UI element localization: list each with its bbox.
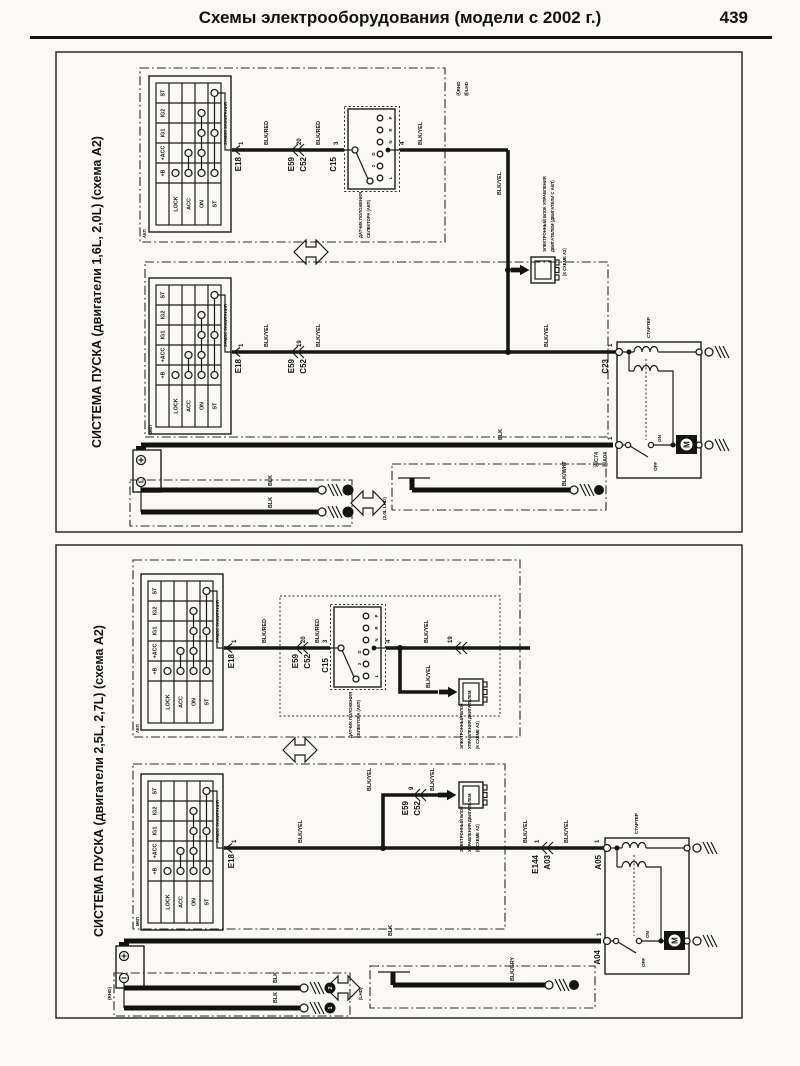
variant-tag-akp: АКП — [142, 229, 147, 238]
variant-tag-mkp: МКП — [135, 917, 140, 926]
ignition-switch — [149, 278, 232, 434]
wire-label-blkyel: BLK/YEL — [298, 819, 304, 843]
variant-swap-arrow — [351, 491, 385, 515]
wire-label-blkred: BLK/RED — [315, 619, 321, 643]
panel2-title: СИСТЕМА ПУСКА (двигатели 2,5L, 2,7L) (сх… — [92, 625, 106, 937]
selector-position-sensor — [330, 605, 386, 690]
ground-mark-1: 1 — [328, 1006, 334, 1009]
wire-label-blkyel: BLK/YEL — [424, 619, 430, 643]
connector-e59: E59 — [287, 156, 296, 171]
pin-20: 20 — [297, 138, 303, 145]
connector-c74: ⒶC74 — [592, 452, 600, 467]
feed-arrow — [511, 265, 530, 275]
feed-arrow — [438, 790, 457, 800]
ecu-schematic-ref: (К СХЕМЕ А2) — [562, 248, 567, 276]
ecu-caption-2: УПРАВЛЕНИЯ ДВИГАТЕЛЕМ — [467, 690, 472, 749]
wire-label-blk: BLK — [268, 475, 274, 486]
variant-swap-arrow — [294, 240, 328, 264]
connector-c15: C15 — [321, 657, 330, 672]
wire-label-blkred: BLK/RED — [262, 619, 268, 643]
wire-label-blkyel: BLK/YEL — [497, 171, 503, 195]
ecu-caption-1: ЭЛЕКТРОННЫЙ БЛОК — [459, 806, 464, 852]
starter-label: СТАРТЕР — [646, 317, 651, 338]
variant-swap-arrow — [283, 738, 317, 762]
variant-tag-akp: АКП — [135, 724, 140, 733]
ground-symbol — [705, 439, 729, 451]
wire-blkyel-ecu-branch — [400, 648, 438, 692]
connector-e18: E18 — [227, 653, 236, 668]
wire-label-blkyel: BLK/YEL — [564, 819, 570, 843]
wire-label-blk: BLK — [268, 497, 274, 508]
pin-1: 1 — [595, 839, 601, 843]
wire-label-blkgry: BLK/GRY — [510, 957, 516, 981]
ignition-switch — [149, 76, 232, 232]
ecu-caption-2: ДВИГАТЕЛЕМ (ДВИГАТЕЛИ С АКП) — [550, 180, 555, 252]
battery — [116, 942, 144, 988]
connector-c23: C23 — [601, 358, 610, 373]
ignition-switch — [141, 574, 224, 730]
feed-arrow — [439, 687, 458, 697]
battery — [133, 446, 161, 492]
connector-e18: E18 — [234, 156, 243, 171]
ground-symbol — [570, 484, 594, 496]
pin-1: 1 — [239, 343, 245, 347]
pin-19: 19 — [297, 340, 303, 347]
wire-label-blkred: BLK/RED — [316, 121, 322, 145]
connector-c52: C52 — [299, 156, 308, 171]
selector-caption-1: ДАТЧИК ПОЛОЖЕНИЯ — [348, 692, 353, 738]
connector-c52: C52 — [299, 358, 308, 373]
wire-label-blkyel: BLK/YEL — [418, 121, 424, 145]
ecu-schematic-ref: (К СХЕМЕ А2) — [475, 721, 480, 749]
marker-lhd: ⒷLHD — [463, 81, 470, 96]
pin-1: 1 — [239, 141, 245, 145]
manual-page: Схемы электрооборудования (модели с 2002… — [0, 0, 800, 1066]
ground-symbol — [300, 982, 324, 994]
connector-c52: C52 — [413, 800, 422, 815]
ground-point — [569, 980, 579, 990]
connector-e144: E144 — [531, 854, 540, 873]
starter-label: СТАРТЕР — [634, 813, 639, 834]
wire-label-blkyel: BLK/YEL — [316, 323, 322, 347]
ecu-caption-2: УПРАВЛЕНИЯ ДВИГАТЕЛЕМ — [467, 793, 472, 852]
connector-e18: E18 — [227, 853, 236, 868]
selector-caption-2: СЕЛЕКТОРА (АКП) — [356, 699, 361, 738]
connector-c52: C52 — [303, 653, 312, 668]
rhd-note: (RHD) — [107, 987, 112, 1000]
selector-caption-2: СЕЛЕКТОРА (АКП) — [366, 199, 371, 238]
marker-rhd: ⒶRHD — [455, 81, 462, 96]
ecu-connector — [531, 257, 559, 283]
pin-3: 3 — [323, 639, 329, 643]
wiring-diagrams: ST IG2 IG1 +ACC +B LOCK ACC ON ST ЗАМОК … — [0, 0, 800, 1066]
starter-assembly — [616, 342, 703, 478]
wire-label-blk: BLK — [388, 925, 394, 936]
ecu-schematic-ref: (К СХЕМЕ А2) — [475, 824, 480, 852]
wire-label-blkyel: BLK/YEL — [544, 323, 550, 347]
pin-1: 1 — [535, 839, 541, 843]
pin-3: 3 — [334, 141, 340, 145]
connector-a05: A05 — [594, 854, 603, 869]
pin-1: 1 — [232, 639, 238, 643]
ground-symbol — [300, 1002, 324, 1014]
wire-label-blkwht: BLK/WHT — [562, 460, 568, 486]
wire-label-blkyel: BLK/YEL — [523, 819, 529, 843]
ground-symbol — [545, 979, 569, 991]
pin-20: 20 — [301, 636, 307, 643]
connector-a04: A04 — [593, 949, 602, 964]
lhd-note: (2,0L LHD) — [382, 497, 387, 520]
ecu-caption-1: ЭЛЕКТРОННЫЙ БЛОК УПРАВЛЕНИЯ — [542, 176, 547, 252]
wire-label-blkyel: BLK/YEL — [367, 767, 373, 791]
ecu-connector — [459, 679, 487, 705]
pin-19: 19 — [448, 636, 454, 643]
lhd-note: (LHD) — [358, 987, 363, 1000]
connector-e59: E59 — [291, 653, 300, 668]
ground-symbol — [318, 484, 342, 496]
wire-label-blk: BLK — [498, 429, 504, 440]
connector-a03: A03 — [543, 854, 552, 869]
pin-1: 1 — [597, 932, 603, 936]
selector-caption-1: ДАТЧИК ПОЛОЖЕНИЯ — [358, 192, 363, 238]
wire-junction — [505, 349, 511, 355]
pin-4: 4 — [400, 141, 406, 145]
wire-label-blkred: BLK/RED — [264, 121, 270, 145]
wire-label-blkyel: BLK/YEL — [264, 323, 270, 347]
ground-point — [343, 507, 354, 518]
pin-1: 1 — [608, 436, 614, 440]
ground-symbol — [693, 842, 717, 854]
connector-e59: E59 — [401, 800, 410, 815]
pin-4: 4 — [386, 639, 392, 643]
pin-1: 1 — [608, 343, 614, 347]
wire-label-blkyel: BLK/YEL — [430, 767, 436, 791]
ecu-caption-1: ЭЛЕКТРОННЫЙ БЛОК — [459, 703, 464, 749]
ground-symbol — [705, 346, 729, 358]
wire-blkyel-ecu-branch — [383, 795, 438, 848]
ground-mark-2: 2 — [328, 986, 334, 989]
wire-junction — [505, 267, 511, 273]
ignition-switch — [141, 774, 224, 930]
panel1-title: СИСТЕМА ПУСКА (двигатели 1,6L, 2,0L) (сх… — [90, 136, 104, 448]
connector-e18: E18 — [234, 358, 243, 373]
panel2-starting-system-25-27: СИСТЕМА ПУСКА (двигатели 2,5L, 2,7L) (сх… — [56, 545, 742, 1018]
pin-1: 1 — [232, 839, 238, 843]
ground-symbol — [693, 935, 717, 947]
panel1-starting-system-16-20: СИСТЕМА ПУСКА (двигатели 1,6L, 2,0L) (сх… — [56, 52, 742, 532]
ecu-connector — [459, 782, 487, 808]
pin-9: 9 — [409, 786, 415, 790]
starter-assembly — [604, 838, 691, 974]
wire-label-blk: BLK — [273, 992, 279, 1003]
ground-symbol — [318, 506, 342, 518]
ground-point — [594, 485, 604, 495]
wire-label-blk: BLK — [273, 972, 279, 983]
selector-position-sensor — [344, 107, 400, 192]
wire-label-blkyel: BLK/YEL — [426, 664, 432, 688]
ground-point — [343, 485, 354, 496]
connector-c15: C15 — [329, 156, 338, 171]
connector-e59: E59 — [287, 358, 296, 373]
connector-a04: ⒷA04 — [601, 452, 609, 467]
